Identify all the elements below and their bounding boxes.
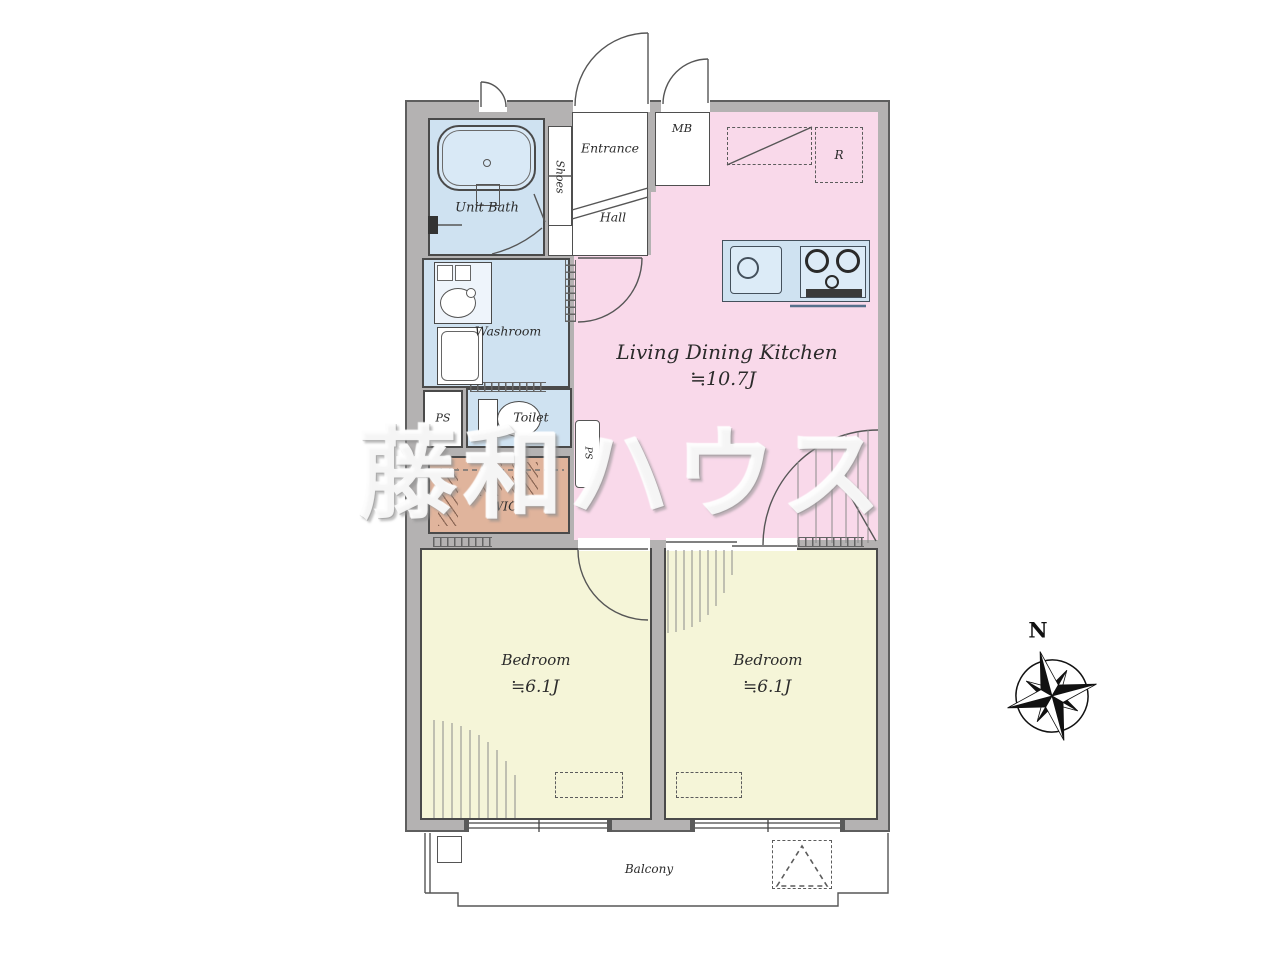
mb-label: MB [672,121,692,135]
bedroom-left-area-label: ≒6.1J [511,677,559,697]
balcony-drain-box [437,836,462,863]
hall-extension [548,226,572,256]
bedroom-left-label: Bedroom [502,651,571,669]
shoes-label: Shoes [554,160,567,193]
washroom-sliding-door-hatch [565,260,576,322]
bedroom-left-door-gap [578,538,650,551]
bathtub-inner [442,130,531,186]
ldk-area-label: ≒10.7J [690,368,756,390]
kitchen-faucet [737,257,759,279]
stove-grill [806,289,862,297]
refrigerator-label: R [834,148,843,162]
compass-north-label: N [1028,618,1047,643]
compass-rose [996,640,1109,753]
floor-plan: Unit Bath Shoes Entrance Hall MB R Livin… [0,0,1280,960]
ldk-label: Living Dining Kitchen [616,340,837,364]
mb-door-gap [661,100,710,112]
window-left-gap [468,820,610,832]
washing-machine-inner [441,331,479,381]
room-entrance-hall [572,112,648,256]
bedroom-left-wall-hatch [433,537,492,547]
washbasin-faucet [466,288,476,298]
balcony-label: Balcony [625,862,673,876]
bedroom-right-label: Bedroom [734,651,803,669]
washbasin-cabinet-right [455,265,471,281]
bath-faucet [428,216,438,234]
washroom-label: Washroom [475,324,542,339]
watermark: 藤和ハウス [350,416,895,536]
washbasin-cabinet-left [437,265,453,281]
stove-burner-left [805,249,829,273]
stove-burner-right [836,249,860,273]
bedroom-right-area-label: ≒6.1J [743,677,791,697]
bedroom-left-storage-dashed [555,772,623,798]
sliding-door-gap [666,538,797,551]
window-right-gap [693,820,843,832]
hall-label: Hall [600,210,626,225]
bathtub-drain [483,159,491,167]
counter-space-dashed [727,127,812,165]
entrance-door-gap [573,100,650,112]
evacuation-hatch [772,840,832,889]
bedroom-right-storage-dashed [676,772,742,798]
service-door-gap [479,100,507,112]
entrance-label: Entrance [581,141,639,156]
stove-burner-small [825,275,839,289]
bedroom-right-window-hatch [798,537,864,547]
unit-bath-label: Unit Bath [455,201,519,216]
